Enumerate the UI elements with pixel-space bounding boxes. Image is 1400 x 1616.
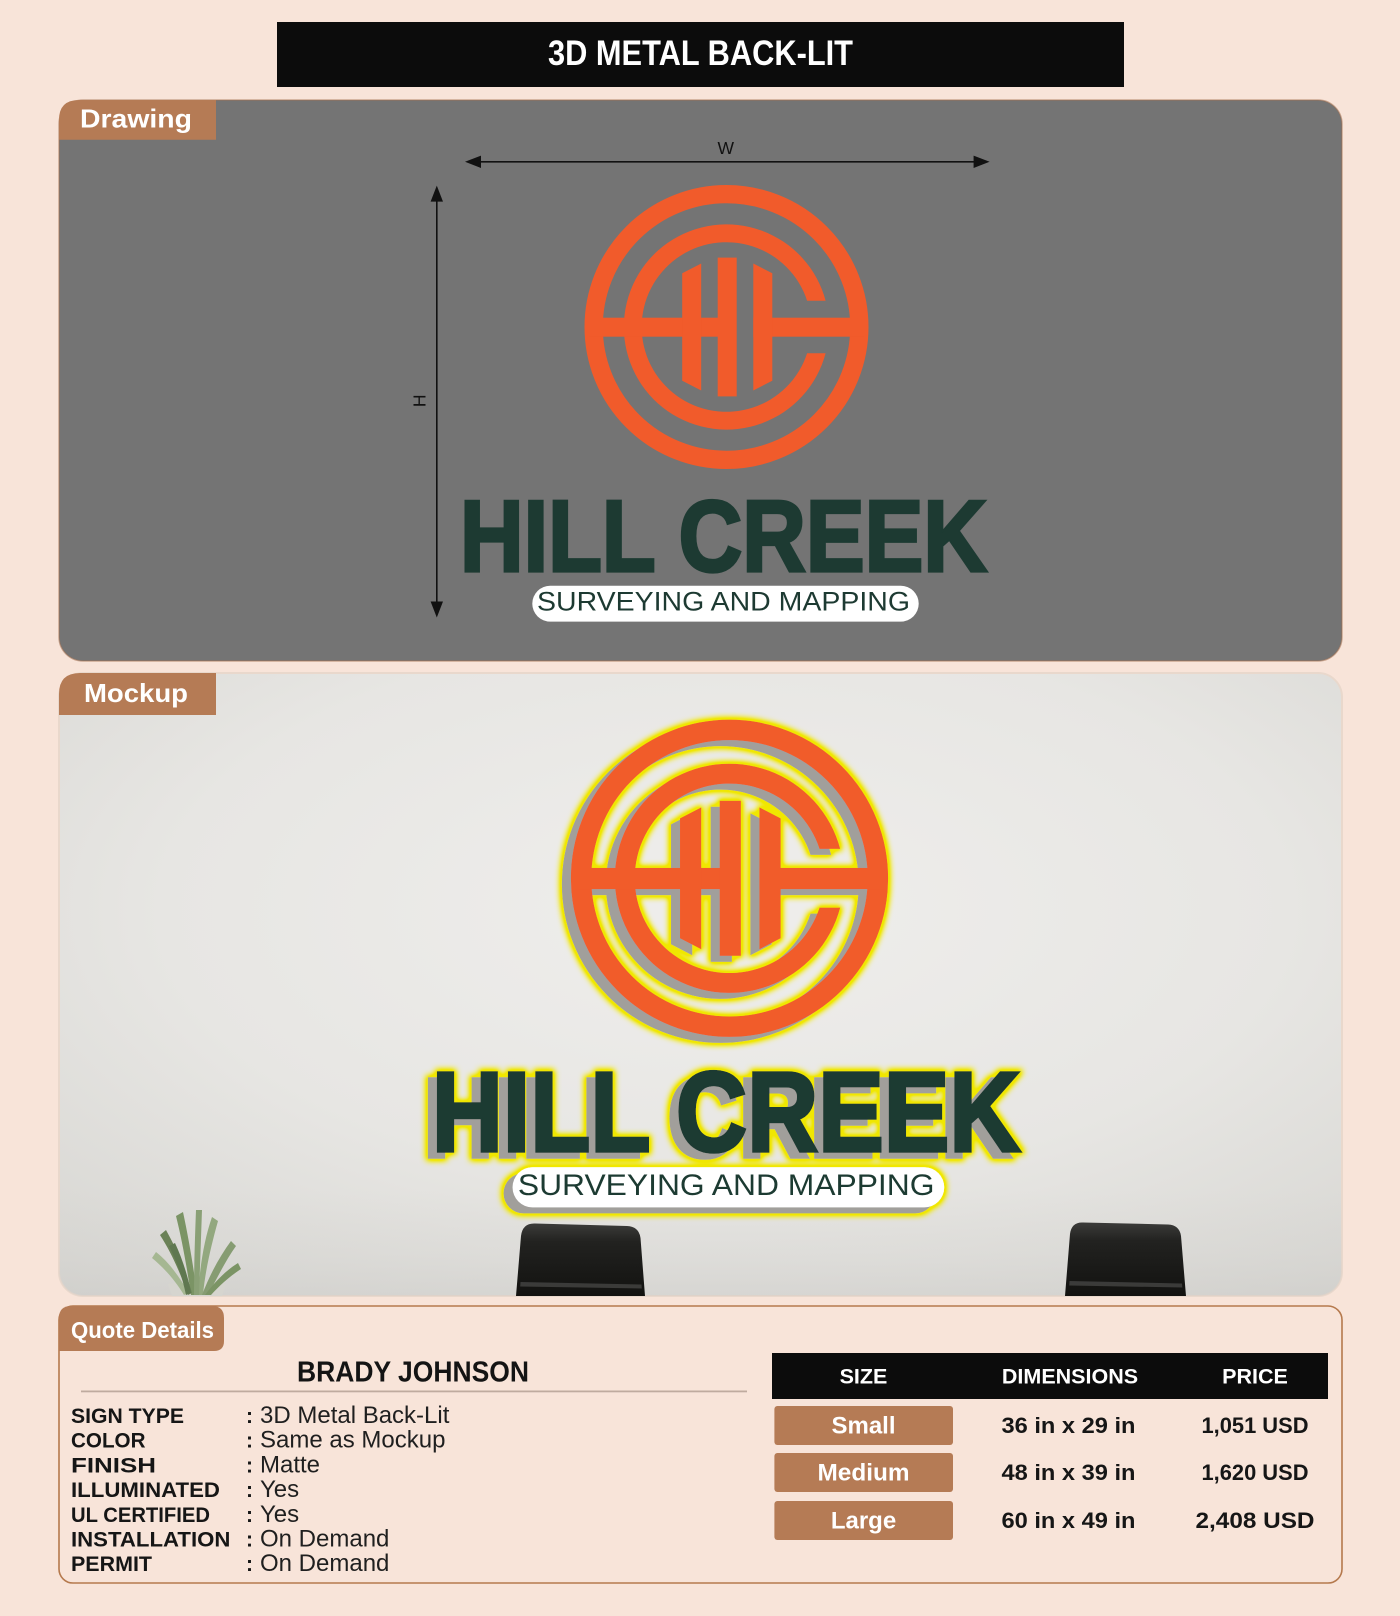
svg-text:Yes: Yes — [260, 1476, 299, 1503]
svg-text:On Demand: On Demand — [260, 1550, 389, 1577]
svg-text:Yes: Yes — [260, 1501, 299, 1528]
svg-text:COLOR: COLOR — [71, 1430, 146, 1453]
svg-text::: : — [246, 1529, 253, 1552]
svg-text:FINISH: FINISH — [71, 1454, 156, 1477]
svg-text:Small: Small — [831, 1413, 895, 1440]
svg-text:PERMIT: PERMIT — [71, 1553, 152, 1576]
svg-text:Same as Mockup: Same as Mockup — [260, 1427, 445, 1454]
svg-text:Quote Details: Quote Details — [71, 1317, 214, 1343]
svg-text:W: W — [718, 138, 735, 158]
svg-text:2,408 USD: 2,408 USD — [1196, 1508, 1315, 1533]
svg-text::: : — [246, 1405, 253, 1428]
svg-text:36 in x 29 in: 36 in x 29 in — [1002, 1413, 1136, 1438]
svg-text:Mockup: Mockup — [84, 678, 188, 708]
svg-text:H: H — [410, 394, 430, 407]
svg-text:Matte: Matte — [260, 1451, 320, 1478]
svg-text:PRICE: PRICE — [1222, 1364, 1288, 1388]
svg-text::: : — [246, 1454, 253, 1477]
svg-text::: : — [246, 1504, 253, 1527]
svg-text:DIMENSIONS: DIMENSIONS — [1002, 1364, 1138, 1388]
svg-text:60 in x 49 in: 60 in x 49 in — [1002, 1508, 1136, 1533]
svg-text:48 in x 39 in: 48 in x 39 in — [1002, 1460, 1136, 1485]
svg-text:Medium: Medium — [818, 1460, 910, 1487]
svg-text:BRADY JOHNSON: BRADY JOHNSON — [297, 1356, 529, 1388]
svg-text:1,620 USD: 1,620 USD — [1202, 1460, 1309, 1485]
svg-text:INSTALLATION: INSTALLATION — [71, 1529, 230, 1552]
svg-text:SIZE: SIZE — [840, 1364, 888, 1388]
svg-text:Drawing: Drawing — [80, 104, 192, 134]
svg-text:On Demand: On Demand — [260, 1526, 389, 1553]
svg-text:1,051 USD: 1,051 USD — [1202, 1413, 1309, 1438]
svg-text::: : — [246, 1479, 253, 1502]
svg-text:SIGN TYPE: SIGN TYPE — [71, 1405, 184, 1428]
svg-text:3D Metal Back-Lit: 3D Metal Back-Lit — [260, 1402, 450, 1429]
svg-text::: : — [246, 1430, 253, 1453]
svg-text::: : — [246, 1553, 253, 1576]
svg-text:3D METAL BACK-LIT: 3D METAL BACK-LIT — [548, 33, 853, 73]
svg-text:UL CERTIFIED: UL CERTIFIED — [71, 1504, 210, 1527]
svg-text:ILLUMINATED: ILLUMINATED — [71, 1479, 220, 1502]
svg-text:Large: Large — [831, 1508, 896, 1535]
